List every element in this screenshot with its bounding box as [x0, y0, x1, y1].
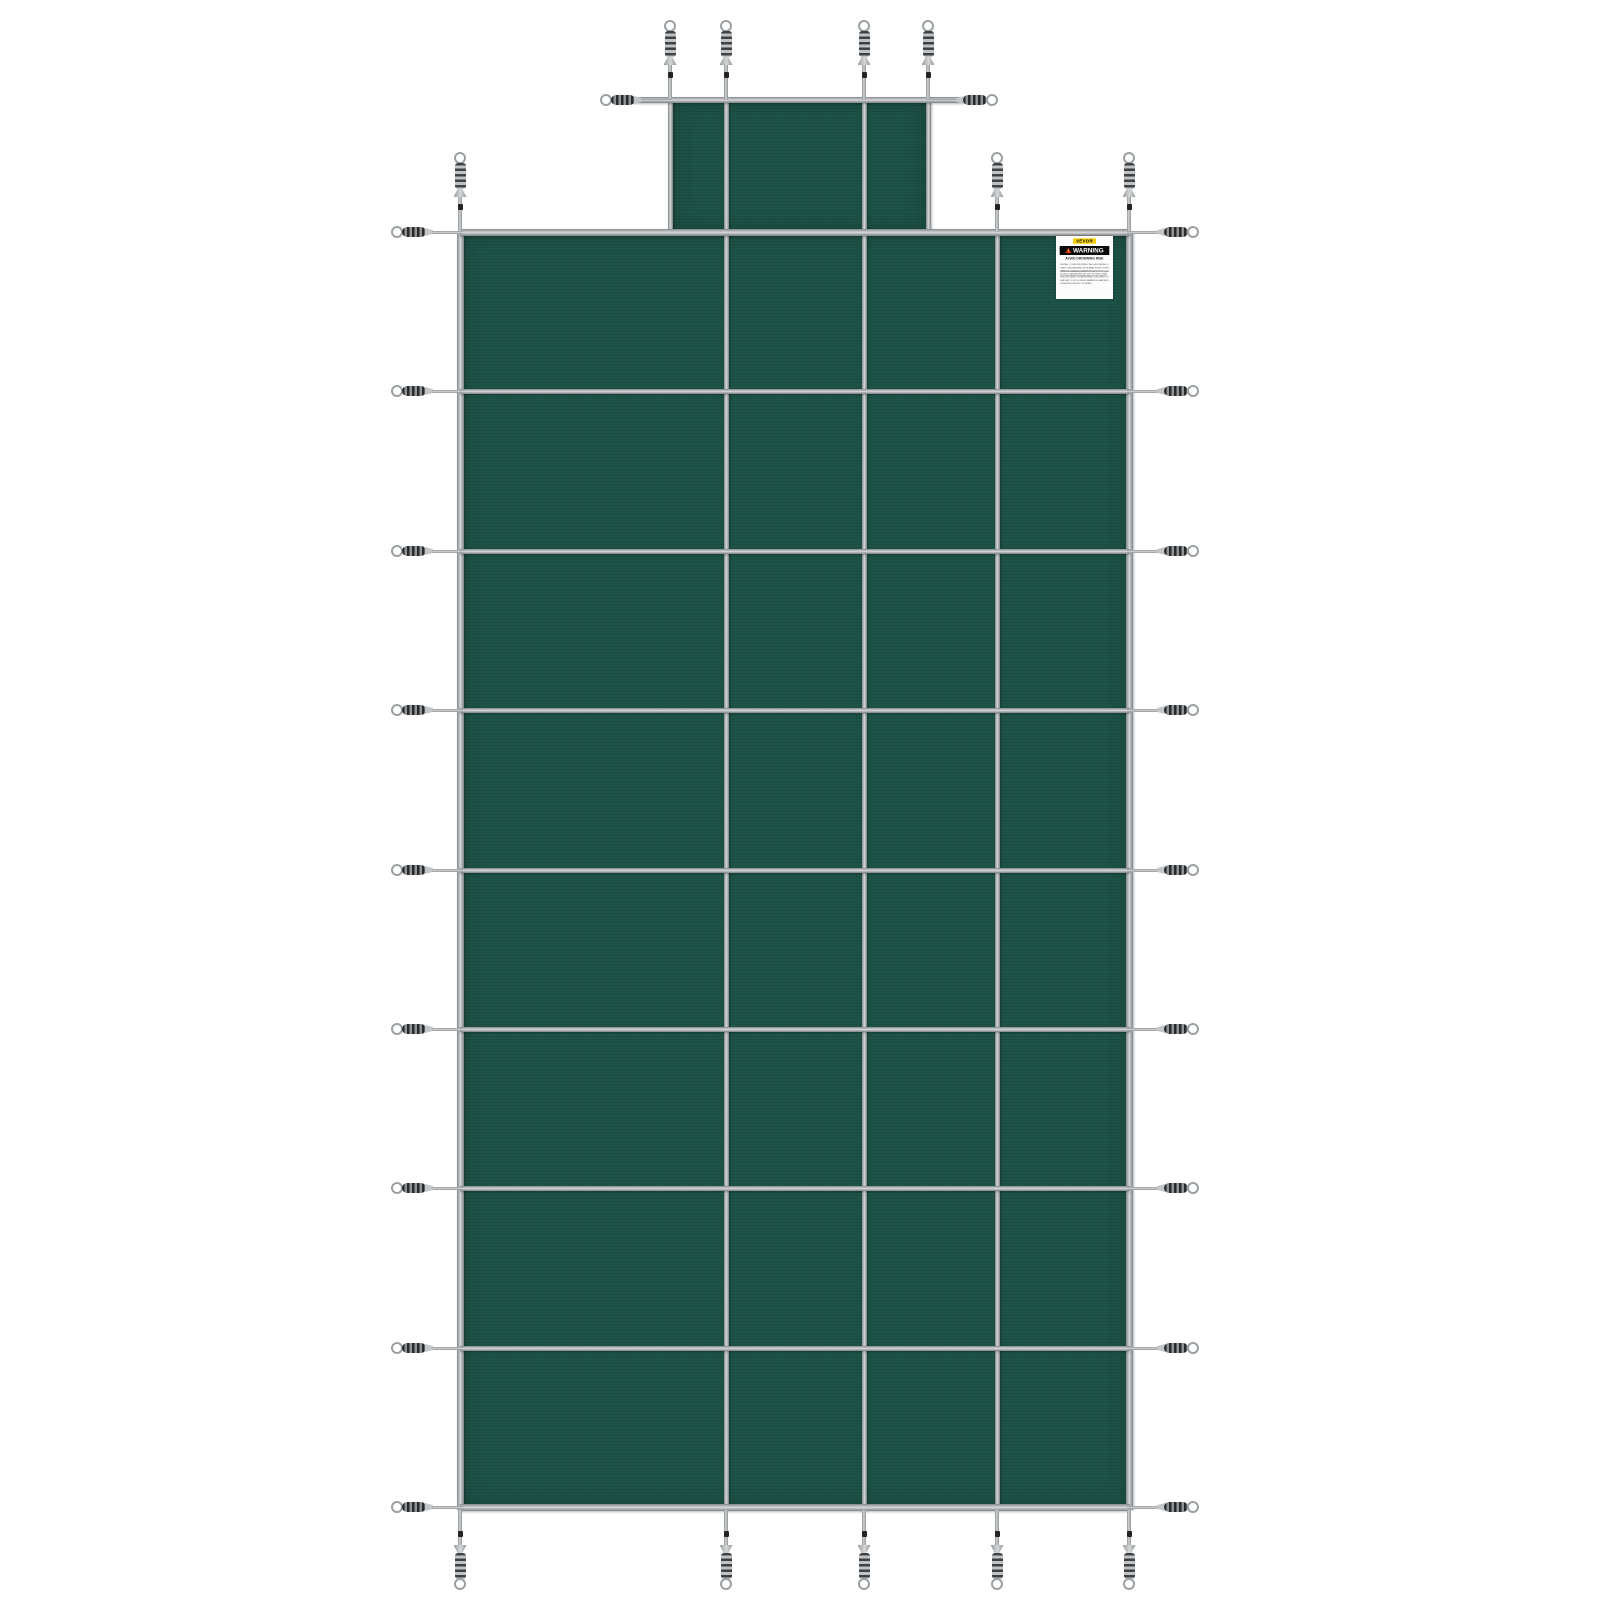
- spring-loop-icon: [1187, 1182, 1199, 1194]
- pool-safety-cover-product-image: VEVOR ! WARNING AVOID DROWNING RISK INST…: [0, 0, 1600, 1600]
- spring-rod: [1127, 1506, 1158, 1510]
- spring-coil: [402, 546, 426, 556]
- spring-loop-icon: [454, 1578, 466, 1590]
- spring-rod: [724, 65, 728, 100]
- spring-rod: [432, 390, 463, 394]
- spring-rod: [432, 709, 463, 713]
- spring-rod: [1127, 1187, 1158, 1191]
- spring-coil: [402, 705, 426, 715]
- tension-spring-left: [391, 225, 463, 239]
- spring-loop-icon: [1187, 1342, 1199, 1354]
- spring-coil: [1164, 1502, 1188, 1512]
- spring-coil: [402, 1183, 426, 1193]
- spring-rod: [641, 99, 672, 103]
- spring-flare: [454, 189, 467, 197]
- warning-label: VEVOR ! WARNING AVOID DROWNING RISK INST…: [1056, 236, 1113, 299]
- warning-banner: ! WARNING: [1060, 246, 1110, 255]
- strap-horizontal: [460, 1504, 1130, 1511]
- spring-coil: [1164, 386, 1188, 396]
- spring-coil: [1164, 705, 1188, 715]
- spring-flare: [454, 1545, 467, 1553]
- spring-rod: [1127, 390, 1158, 394]
- tension-spring-right: [1127, 1500, 1199, 1514]
- spring-band: [1127, 204, 1132, 210]
- spring-rod: [432, 550, 463, 554]
- spring-loop-icon: [1187, 1023, 1199, 1035]
- spring-band: [995, 1531, 1000, 1537]
- tension-spring-left: [391, 1500, 463, 1514]
- warning-title: WARNING: [1073, 247, 1104, 254]
- vevor-logo: VEVOR: [1073, 238, 1096, 243]
- mesh-panel-step: [670, 100, 928, 232]
- spring-rod: [432, 1187, 463, 1191]
- tension-spring-left: [391, 703, 463, 717]
- tension-spring-up: [1122, 152, 1136, 232]
- spring-coil: [721, 1553, 732, 1579]
- spring-loop-icon: [986, 94, 998, 106]
- spring-loop-icon: [1123, 1578, 1135, 1590]
- strap-horizontal: [460, 229, 1130, 236]
- warning-text-lines: INSTALL COVER PROPERLY AND SECURE ALL SP…: [1060, 263, 1108, 285]
- spring-flare: [664, 57, 677, 65]
- strap-horizontal: [460, 1346, 1130, 1351]
- tension-spring-up: [453, 152, 467, 232]
- strap-horizontal: [460, 1027, 1130, 1032]
- spring-coil: [1164, 227, 1188, 237]
- tension-spring-right: [1127, 544, 1199, 558]
- strap-vertical: [668, 100, 673, 232]
- spring-rod: [432, 1028, 463, 1032]
- warning-line: IN SERIOUS INJURY OR DEATH: [1060, 282, 1108, 285]
- spring-rod: [995, 197, 999, 232]
- spring-flare: [720, 57, 733, 65]
- spring-loop-icon: [1187, 704, 1199, 716]
- tension-spring-left: [600, 93, 672, 107]
- strap-horizontal: [460, 868, 1130, 873]
- spring-coil: [402, 227, 426, 237]
- spring-rod: [1127, 550, 1158, 554]
- warning-subtitle: AVOID DROWNING RISK: [1056, 257, 1113, 261]
- strap-vertical: [862, 100, 867, 1510]
- strap-horizontal: [460, 708, 1130, 713]
- tension-spring-right: [1127, 1181, 1199, 1195]
- spring-loop-icon: [1187, 545, 1199, 557]
- strap-horizontal: [634, 97, 964, 103]
- tension-spring-up: [921, 20, 935, 100]
- spring-rod: [432, 1506, 463, 1510]
- spring-coil: [859, 1553, 870, 1579]
- tension-spring-right: [1127, 1341, 1199, 1355]
- spring-band: [995, 204, 1000, 210]
- spring-flare: [858, 57, 871, 65]
- tension-spring-left: [391, 1022, 463, 1036]
- tension-spring-down: [719, 1510, 733, 1590]
- spring-band: [862, 1531, 867, 1537]
- tension-spring-right: [1127, 225, 1199, 239]
- tension-spring-left: [391, 863, 463, 877]
- tension-spring-left: [391, 1181, 463, 1195]
- tension-spring-down: [857, 1510, 871, 1590]
- spring-flare: [991, 189, 1004, 197]
- spring-coil: [859, 31, 870, 57]
- tension-spring-down: [1122, 1510, 1136, 1590]
- spring-rod: [432, 231, 463, 235]
- spring-band: [862, 72, 867, 78]
- spring-loop-icon: [1187, 1501, 1199, 1513]
- spring-loop-icon: [1187, 226, 1199, 238]
- spring-loop-icon: [858, 1578, 870, 1590]
- spring-rod: [724, 1510, 728, 1545]
- spring-coil: [1164, 1024, 1188, 1034]
- spring-coil: [665, 31, 676, 57]
- spring-band: [458, 1531, 463, 1537]
- spring-coil: [1164, 546, 1188, 556]
- warning-triangle-icon: !: [1065, 248, 1071, 253]
- tension-spring-down: [453, 1510, 467, 1590]
- spring-rod: [432, 869, 463, 873]
- strap-vertical: [926, 100, 931, 232]
- strap-horizontal: [460, 389, 1130, 394]
- tension-spring-left: [391, 384, 463, 398]
- spring-flare: [1123, 1545, 1136, 1553]
- spring-flare: [922, 57, 935, 65]
- tension-spring-up: [719, 20, 733, 100]
- spring-band: [926, 72, 931, 78]
- strap-vertical: [724, 100, 729, 1510]
- spring-band: [458, 204, 463, 210]
- tension-spring-right: [1127, 1022, 1199, 1036]
- spring-flare: [858, 1545, 871, 1553]
- spring-rod: [995, 1510, 999, 1545]
- spring-coil: [1164, 1183, 1188, 1193]
- spring-rod: [1127, 869, 1158, 873]
- tension-spring-down: [990, 1510, 1004, 1590]
- spring-rod: [458, 1510, 462, 1545]
- spring-coil: [402, 1502, 426, 1512]
- tension-spring-up: [663, 20, 677, 100]
- spring-rod: [862, 1510, 866, 1545]
- spring-coil: [1164, 865, 1188, 875]
- spring-rod: [862, 65, 866, 100]
- spring-coil: [963, 95, 987, 105]
- spring-coil: [1164, 1343, 1188, 1353]
- tension-spring-left: [391, 1341, 463, 1355]
- spring-rod: [1127, 709, 1158, 713]
- spring-coil: [992, 163, 1003, 189]
- spring-coil: [402, 865, 426, 875]
- spring-flare: [720, 1545, 733, 1553]
- spring-band: [724, 72, 729, 78]
- tension-spring-right: [926, 93, 998, 107]
- spring-coil: [402, 1024, 426, 1034]
- spring-coil: [402, 1343, 426, 1353]
- spring-coil: [1124, 163, 1135, 189]
- spring-rod: [1127, 1028, 1158, 1032]
- spring-coil: [455, 1553, 466, 1579]
- spring-loop-icon: [1187, 385, 1199, 397]
- spring-coil: [923, 31, 934, 57]
- tension-spring-up: [990, 152, 1004, 232]
- spring-band: [1127, 1531, 1132, 1537]
- tension-spring-right: [1127, 863, 1199, 877]
- spring-rod: [1127, 1510, 1131, 1545]
- spring-coil: [992, 1553, 1003, 1579]
- spring-band: [724, 1531, 729, 1537]
- spring-rod: [432, 1347, 463, 1351]
- spring-rod: [1127, 231, 1158, 235]
- spring-loop-icon: [1187, 864, 1199, 876]
- spring-coil: [455, 163, 466, 189]
- spring-coil: [611, 95, 635, 105]
- spring-coil: [721, 31, 732, 57]
- tension-spring-up: [857, 20, 871, 100]
- spring-coil: [402, 386, 426, 396]
- spring-flare: [1123, 189, 1136, 197]
- spring-rod: [1127, 1347, 1158, 1351]
- spring-band: [668, 72, 673, 78]
- spring-loop-icon: [720, 1578, 732, 1590]
- tension-spring-left: [391, 544, 463, 558]
- strap-horizontal: [460, 1186, 1130, 1191]
- spring-flare: [991, 1545, 1004, 1553]
- warning-label-content: VEVOR ! WARNING AVOID DROWNING RISK INST…: [1056, 236, 1113, 299]
- tension-spring-right: [1127, 703, 1199, 717]
- spring-loop-icon: [991, 1578, 1003, 1590]
- spring-coil: [1124, 1553, 1135, 1579]
- tension-spring-right: [1127, 384, 1199, 398]
- spring-rod: [926, 99, 957, 103]
- strap-horizontal: [460, 549, 1130, 554]
